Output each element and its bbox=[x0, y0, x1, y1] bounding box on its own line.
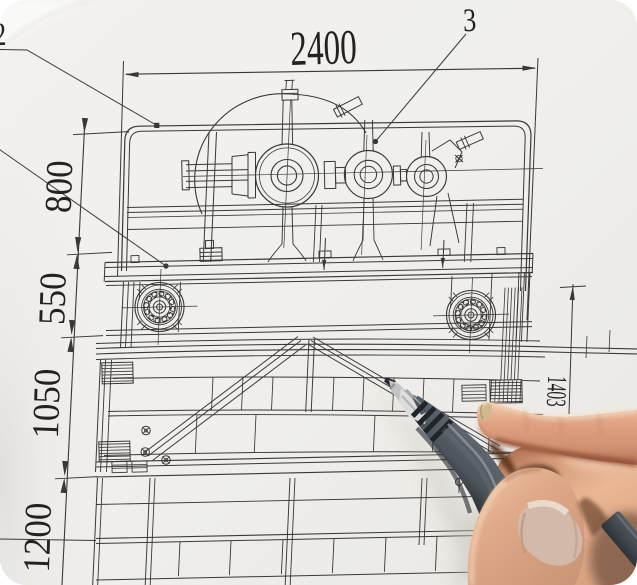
svg-text:2: 2 bbox=[0, 16, 7, 53]
svg-text:1200: 1200 bbox=[15, 502, 60, 573]
svg-text:3: 3 bbox=[463, 2, 477, 39]
svg-text:1403: 1403 bbox=[541, 375, 573, 407]
svg-text:1050: 1050 bbox=[24, 368, 69, 439]
svg-text:2400: 2400 bbox=[289, 21, 357, 77]
svg-text:800: 800 bbox=[36, 160, 80, 214]
svg-text:550: 550 bbox=[30, 272, 74, 326]
